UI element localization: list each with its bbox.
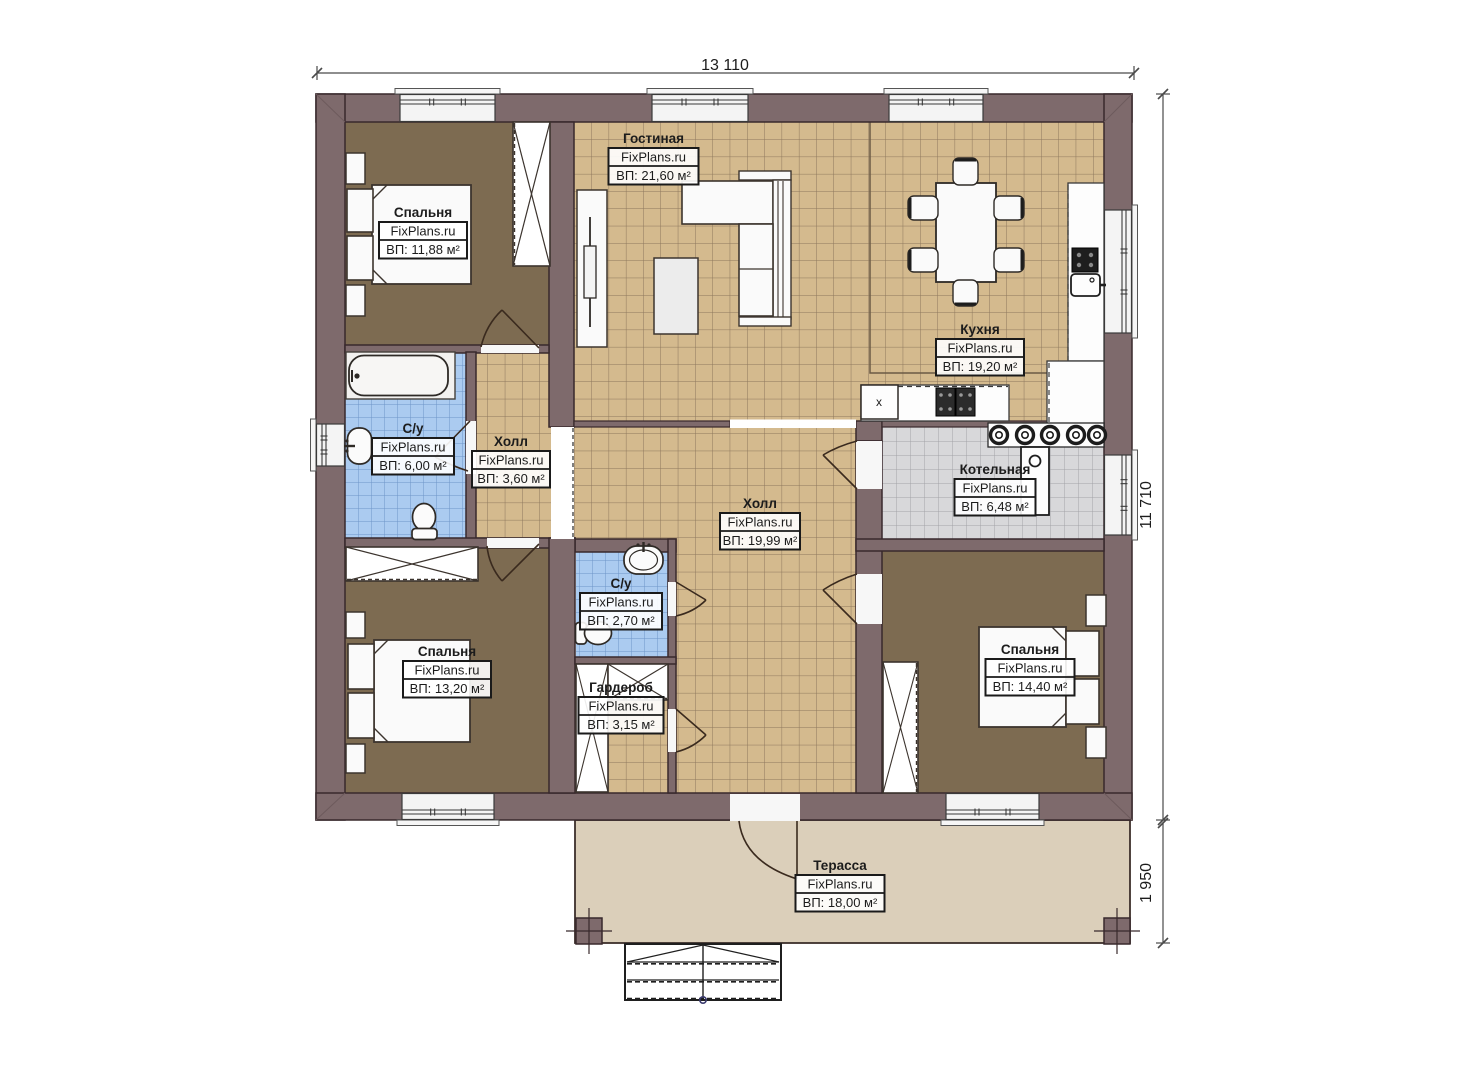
svg-text:ВП: 3,15 м²: ВП: 3,15 м² [587, 717, 655, 732]
svg-text:FixPlans.ru: FixPlans.ru [478, 453, 543, 468]
svg-text:ВП: 13,20 м²: ВП: 13,20 м² [410, 681, 485, 696]
svg-text:FixPlans.ru: FixPlans.ru [807, 877, 872, 892]
svg-text:ВП: 2,70 м²: ВП: 2,70 м² [587, 613, 655, 628]
svg-text:Спальня: Спальня [418, 644, 476, 659]
svg-text:x: x [876, 395, 882, 409]
svg-text:ВП: 3,60 м²: ВП: 3,60 м² [477, 471, 545, 486]
svg-text:Котельная: Котельная [960, 462, 1031, 477]
svg-text:Спальня: Спальня [1001, 642, 1059, 657]
svg-text:11 710: 11 710 [1138, 481, 1155, 529]
svg-text:FixPlans.ru: FixPlans.ru [997, 661, 1062, 676]
svg-text:FixPlans.ru: FixPlans.ru [380, 440, 445, 455]
svg-text:Холл: Холл [494, 434, 528, 449]
svg-text:ВП: 18,00 м²: ВП: 18,00 м² [803, 895, 878, 910]
svg-text:Спальня: Спальня [394, 205, 452, 220]
svg-text:FixPlans.ru: FixPlans.ru [947, 341, 1012, 356]
svg-text:Терасса: Терасса [813, 858, 867, 873]
svg-text:FixPlans.ru: FixPlans.ru [414, 663, 479, 678]
svg-text:ВП: 6,00 м²: ВП: 6,00 м² [379, 458, 447, 473]
svg-text:ВП: 6,48 м²: ВП: 6,48 м² [961, 499, 1029, 514]
svg-text:FixPlans.ru: FixPlans.ru [390, 224, 455, 239]
svg-text:ВП: 14,40 м²: ВП: 14,40 м² [993, 679, 1068, 694]
svg-text:FixPlans.ru: FixPlans.ru [588, 595, 653, 610]
svg-text:С/у: С/у [402, 421, 424, 436]
svg-text:Кухня: Кухня [960, 322, 999, 337]
svg-text:ВП: 21,60 м²: ВП: 21,60 м² [616, 168, 691, 183]
svg-text:FixPlans.ru: FixPlans.ru [962, 481, 1027, 496]
svg-text:FixPlans.ru: FixPlans.ru [621, 150, 686, 165]
svg-text:Гардероб: Гардероб [589, 680, 653, 695]
svg-text:1 950: 1 950 [1138, 863, 1155, 903]
svg-text:Гостиная: Гостиная [623, 131, 684, 146]
svg-text:ВП: 19,99 м²: ВП: 19,99 м² [723, 533, 798, 548]
svg-text:С/у: С/у [610, 576, 632, 591]
svg-text:Холл: Холл [743, 496, 777, 511]
svg-text:ВП: 11,88 м²: ВП: 11,88 м² [386, 242, 460, 257]
svg-text:13 110: 13 110 [701, 57, 749, 74]
svg-text:FixPlans.ru: FixPlans.ru [727, 515, 792, 530]
svg-text:FixPlans.ru: FixPlans.ru [588, 699, 653, 714]
svg-text:ВП: 19,20 м²: ВП: 19,20 м² [943, 359, 1018, 374]
